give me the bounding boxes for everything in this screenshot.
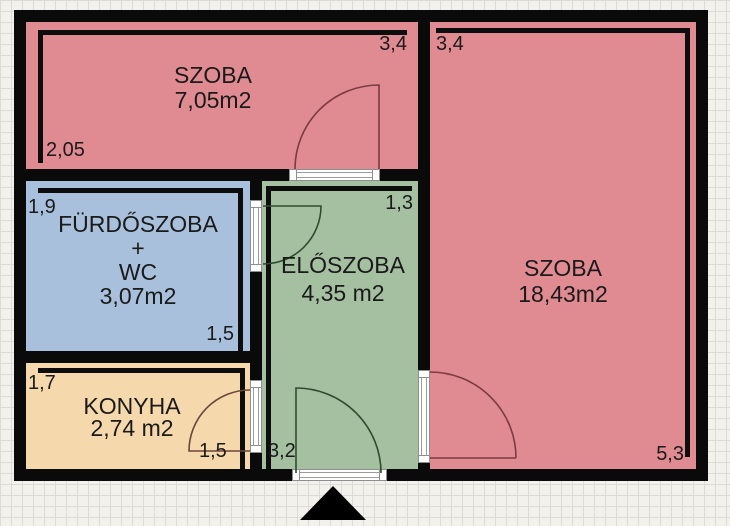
room-szoba-large — [430, 22, 696, 469]
label-szoba-small: SZOBA 7,05m2 — [26, 63, 400, 113]
label-szoba-large: SZOBA 18,43m2 — [430, 255, 696, 307]
inset-eloszoba-top — [268, 186, 412, 191]
dim-szoba-small-left: 2,05 — [46, 139, 85, 162]
door-opening-szoba-large — [418, 370, 430, 463]
inset-szoba-large-top — [436, 28, 690, 33]
door-opening-konyha — [250, 380, 262, 453]
door-opening-furdoszoba — [250, 200, 262, 272]
door-opening-entrance — [292, 469, 387, 481]
door-opening-szoba-small — [289, 169, 380, 181]
label-furdoszoba-area: 3,07m2 — [26, 284, 250, 308]
dim-eloszoba-bottom: 3,2 — [268, 440, 296, 463]
wall-bath-kitchen — [26, 351, 262, 363]
wall-outer-top — [14, 10, 708, 22]
inset-furdoszoba-top — [38, 188, 243, 193]
label-szoba-large-area: 18,43m2 — [430, 281, 696, 307]
wall-outer-right — [696, 10, 708, 481]
label-konyha-name: KONYHA — [14, 395, 250, 417]
dim-furdoszoba-top: 1,9 — [28, 196, 56, 219]
label-szoba-small-area: 7,05m2 — [26, 88, 400, 113]
room-eloszoba — [262, 181, 418, 469]
dim-furdoszoba-bottom: 1,5 — [206, 323, 234, 346]
entrance-arrow-icon — [300, 486, 366, 520]
dim-konyha-top: 1,7 — [28, 372, 56, 395]
label-konyha: KONYHA 2,74 m2 — [14, 395, 250, 439]
inset-szoba-small-top — [38, 30, 407, 35]
label-furdoszoba-line2: + — [26, 236, 250, 260]
dim-eloszoba-top: 1,3 — [385, 192, 413, 215]
label-szoba-large-name: SZOBA — [430, 255, 696, 281]
inset-konyha-top — [38, 368, 245, 373]
inset-szoba-large-right — [685, 28, 690, 457]
label-eloszoba: ELŐSZOBA 4,35 m2 — [262, 251, 424, 307]
dim-szoba-small-top: 3,4 — [379, 33, 407, 56]
dim-szoba-large-top: 3,4 — [436, 33, 464, 56]
label-eloszoba-area: 4,35 m2 — [262, 279, 424, 307]
dim-konyha-bottom: 1,5 — [199, 440, 227, 463]
inset-eloszoba-left — [266, 186, 271, 469]
label-konyha-area: 2,74 m2 — [14, 417, 250, 439]
dim-szoba-large-bottom: 5,3 — [656, 443, 684, 466]
label-furdoszoba-line1: FÜRDŐSZOBA — [26, 212, 250, 236]
label-furdoszoba: FÜRDŐSZOBA + WC 3,07m2 — [26, 212, 250, 308]
label-szoba-small-name: SZOBA — [26, 63, 400, 88]
label-eloszoba-name: ELŐSZOBA — [262, 251, 424, 279]
label-furdoszoba-line3: WC — [26, 260, 250, 284]
floorplan-canvas: SZOBA 7,05m2 SZOBA 18,43m2 FÜRDŐSZOBA + … — [0, 0, 730, 526]
